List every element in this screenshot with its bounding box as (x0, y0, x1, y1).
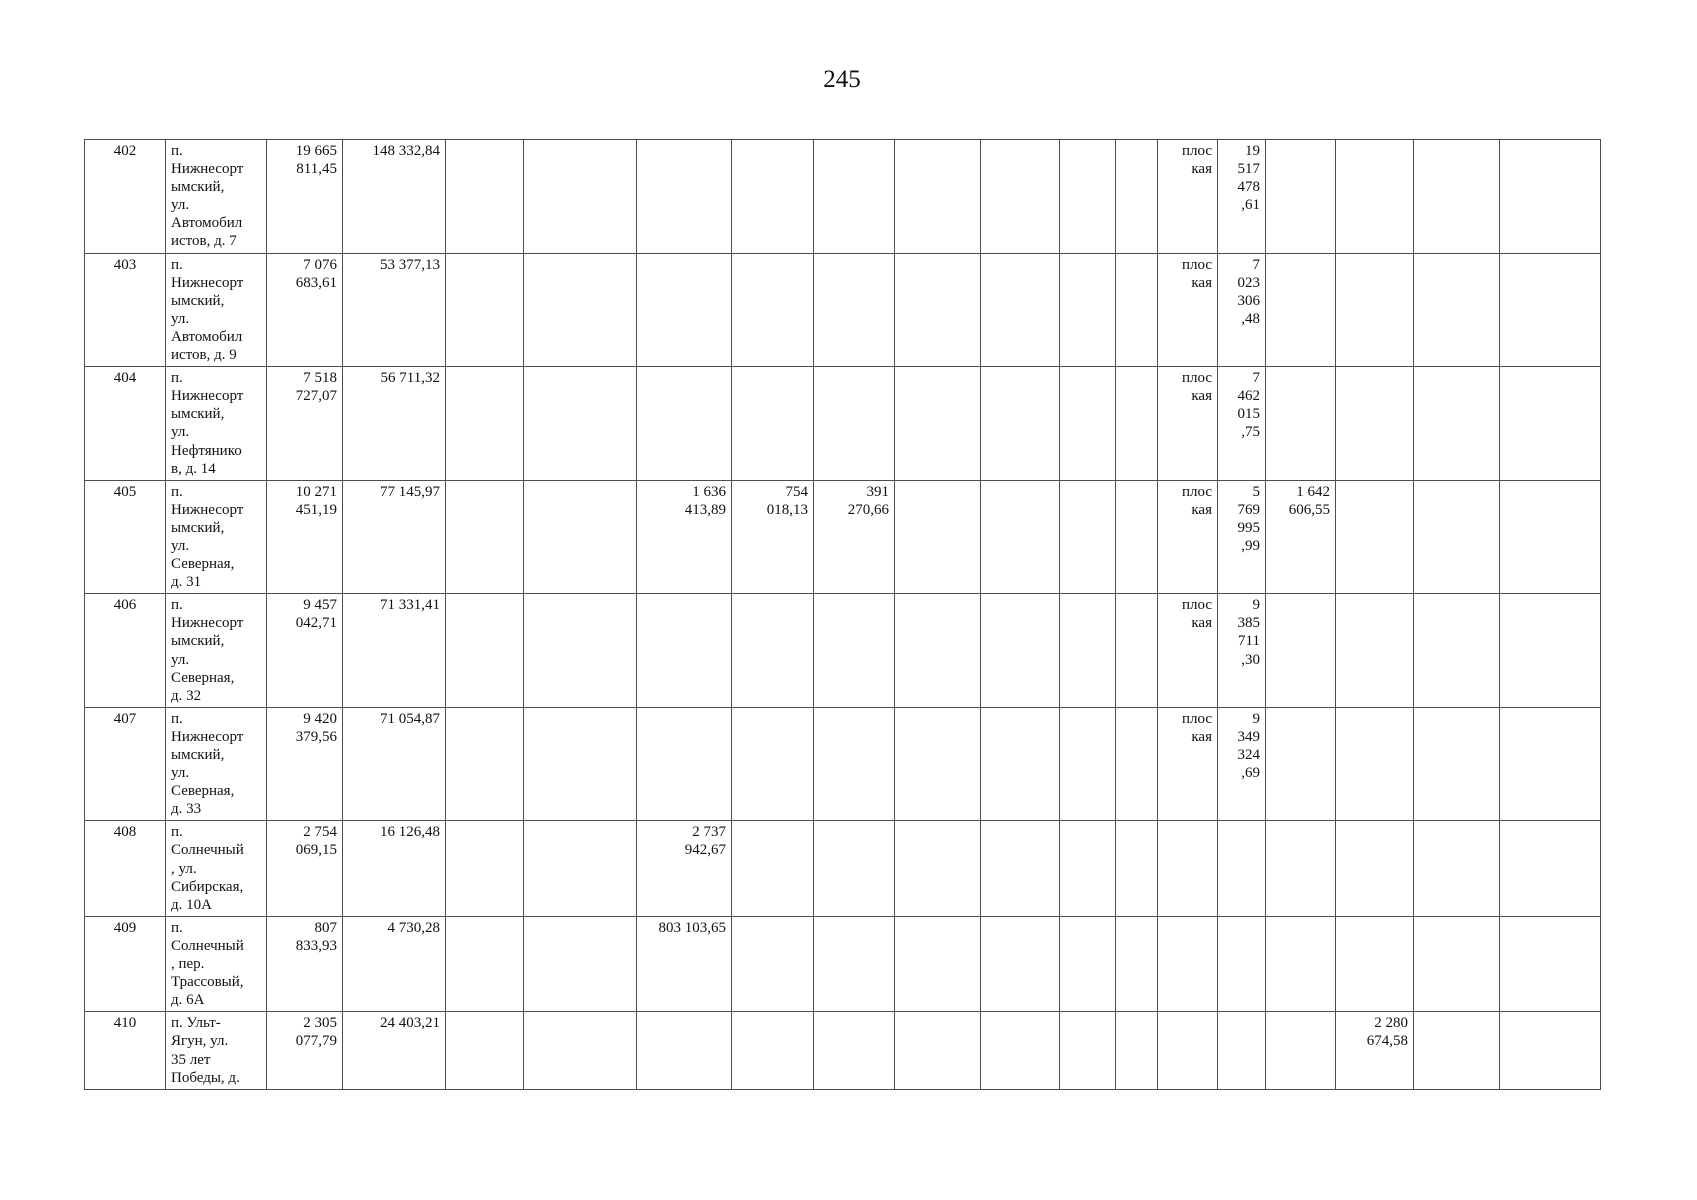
cell-amount-7: 2 280 674,58 (1336, 1012, 1414, 1089)
cell-col-6 (524, 594, 637, 708)
cell-amount-2: 56 711,32 (343, 367, 446, 481)
cell-col-5 (446, 707, 524, 821)
cell-amount-1: 9 457 042,71 (267, 594, 343, 708)
cell-amount-1: 807 833,93 (267, 916, 343, 1011)
cell-col-12 (1060, 140, 1116, 254)
cell-amount-2: 71 054,87 (343, 707, 446, 821)
page-number: 245 (84, 66, 1600, 95)
cell-amount-7 (1336, 916, 1414, 1011)
cell-address: п. Нижнесорт ымский, ул. Нефтянико в, д.… (166, 367, 267, 481)
cell-col-19 (1500, 707, 1601, 821)
cell-col-19 (1500, 367, 1601, 481)
cell-amount-2: 16 126,48 (343, 821, 446, 916)
cell-col-12 (1060, 916, 1116, 1011)
cell-col-18 (1414, 707, 1500, 821)
cell-amount-5 (814, 594, 895, 708)
table-row: 409п. Солнечный , пер. Трассовый, д. 6А8… (85, 916, 1601, 1011)
cell-row-number: 409 (85, 916, 166, 1011)
cell-col-13 (1116, 707, 1158, 821)
cell-col-13 (1116, 480, 1158, 594)
cell-col-12 (1060, 1012, 1116, 1089)
cell-amount-6 (1266, 140, 1336, 254)
cell-col-11 (981, 140, 1060, 254)
cell-amount-2: 24 403,21 (343, 1012, 446, 1089)
cell-row-number: 408 (85, 821, 166, 916)
cell-row-number: 407 (85, 707, 166, 821)
cell-row-number: 410 (85, 1012, 166, 1089)
cell-row-number: 402 (85, 140, 166, 254)
table-body: 402п. Нижнесорт ымский, ул. Автомобил ис… (85, 140, 1601, 1090)
cell-col-12 (1060, 253, 1116, 367)
cell-amount-5 (814, 1012, 895, 1089)
cell-amount-1: 10 271 451,19 (267, 480, 343, 594)
cell-col-6 (524, 821, 637, 916)
cell-amount-5 (814, 707, 895, 821)
cell-col-18 (1414, 821, 1500, 916)
cell-amount-3 (637, 594, 732, 708)
cell-col-10 (895, 253, 981, 367)
cell-amount-7 (1336, 480, 1414, 594)
cell-col-13 (1116, 253, 1158, 367)
cell-col-10 (895, 821, 981, 916)
table-row: 410п. Ульт- Ягун, ул. 35 лет Победы, д.2… (85, 1012, 1601, 1089)
cell-amount-3: 2 737 942,67 (637, 821, 732, 916)
cell-amount-3 (637, 367, 732, 481)
cell-roof-type: плос кая (1158, 707, 1218, 821)
cell-col-19 (1500, 916, 1601, 1011)
cell-col-5 (446, 140, 524, 254)
cell-amount-6 (1266, 594, 1336, 708)
table-row: 402п. Нижнесорт ымский, ул. Автомобил ис… (85, 140, 1601, 254)
cell-amount-6 (1266, 821, 1336, 916)
cell-col-19 (1500, 140, 1601, 254)
cell-col-5 (446, 480, 524, 594)
cell-col-13 (1116, 367, 1158, 481)
cell-amount-3 (637, 253, 732, 367)
cell-col-10 (895, 707, 981, 821)
cell-col-10 (895, 916, 981, 1011)
cell-col-18 (1414, 916, 1500, 1011)
cell-roof-amount (1218, 916, 1266, 1011)
cell-col-12 (1060, 594, 1116, 708)
cell-col-18 (1414, 367, 1500, 481)
cell-col-5 (446, 916, 524, 1011)
cell-roof-amount (1218, 1012, 1266, 1089)
cell-col-5 (446, 594, 524, 708)
cell-amount-4 (732, 140, 814, 254)
table-row: 403п. Нижнесорт ымский, ул. Автомобил ис… (85, 253, 1601, 367)
cell-col-13 (1116, 140, 1158, 254)
cell-col-5 (446, 821, 524, 916)
cell-col-10 (895, 140, 981, 254)
cell-amount-5 (814, 821, 895, 916)
table-row: 407п. Нижнесорт ымский, ул. Северная, д.… (85, 707, 1601, 821)
cell-row-number: 406 (85, 594, 166, 708)
cell-row-number: 404 (85, 367, 166, 481)
cell-col-10 (895, 480, 981, 594)
cell-col-13 (1116, 594, 1158, 708)
cell-roof-type: плос кая (1158, 253, 1218, 367)
cell-amount-4 (732, 707, 814, 821)
cell-amount-2: 148 332,84 (343, 140, 446, 254)
cell-col-6 (524, 140, 637, 254)
cell-address: п. Солнечный , пер. Трассовый, д. 6А (166, 916, 267, 1011)
cell-col-12 (1060, 707, 1116, 821)
cell-col-11 (981, 1012, 1060, 1089)
cell-amount-7 (1336, 140, 1414, 254)
cell-col-6 (524, 480, 637, 594)
cell-amount-4 (732, 821, 814, 916)
cell-amount-1: 9 420 379,56 (267, 707, 343, 821)
cell-col-6 (524, 916, 637, 1011)
cell-col-18 (1414, 253, 1500, 367)
cell-address: п. Нижнесорт ымский, ул. Северная, д. 31 (166, 480, 267, 594)
cell-col-11 (981, 821, 1060, 916)
cell-roof-type (1158, 1012, 1218, 1089)
cell-col-5 (446, 253, 524, 367)
cell-amount-5: 391 270,66 (814, 480, 895, 594)
cell-col-6 (524, 707, 637, 821)
cell-amount-5 (814, 253, 895, 367)
cell-amount-6 (1266, 707, 1336, 821)
cell-col-5 (446, 1012, 524, 1089)
cell-amount-4 (732, 1012, 814, 1089)
cell-col-5 (446, 367, 524, 481)
cell-amount-7 (1336, 707, 1414, 821)
cell-col-10 (895, 367, 981, 481)
table-row: 408п. Солнечный , ул. Сибирская, д. 10А2… (85, 821, 1601, 916)
cell-col-10 (895, 594, 981, 708)
cell-amount-3 (637, 140, 732, 254)
cell-roof-type: плос кая (1158, 367, 1218, 481)
cell-col-6 (524, 367, 637, 481)
cell-amount-2: 77 145,97 (343, 480, 446, 594)
cell-address: п. Нижнесорт ымский, ул. Северная, д. 33 (166, 707, 267, 821)
cell-address: п. Солнечный , ул. Сибирская, д. 10А (166, 821, 267, 916)
cell-amount-1: 19 665 811,45 (267, 140, 343, 254)
cell-amount-3: 803 103,65 (637, 916, 732, 1011)
cell-col-18 (1414, 480, 1500, 594)
cell-col-19 (1500, 821, 1601, 916)
cell-col-13 (1116, 1012, 1158, 1089)
cell-amount-4: 754 018,13 (732, 480, 814, 594)
cell-amount-1: 2 305 077,79 (267, 1012, 343, 1089)
cell-amount-3 (637, 707, 732, 821)
cell-col-11 (981, 253, 1060, 367)
table-row: 404п. Нижнесорт ымский, ул. Нефтянико в,… (85, 367, 1601, 481)
cell-amount-1: 2 754 069,15 (267, 821, 343, 916)
cell-amount-5 (814, 916, 895, 1011)
cell-col-11 (981, 916, 1060, 1011)
cell-address: п. Ульт- Ягун, ул. 35 лет Победы, д. (166, 1012, 267, 1089)
cell-amount-5 (814, 140, 895, 254)
cell-roof-amount: 7 462 015 ,75 (1218, 367, 1266, 481)
cell-amount-7 (1336, 594, 1414, 708)
cell-col-11 (981, 707, 1060, 821)
cell-roof-amount: 9 349 324 ,69 (1218, 707, 1266, 821)
cell-amount-6 (1266, 367, 1336, 481)
table-row: 406п. Нижнесорт ымский, ул. Северная, д.… (85, 594, 1601, 708)
cell-amount-4 (732, 367, 814, 481)
cell-col-19 (1500, 594, 1601, 708)
cell-col-13 (1116, 821, 1158, 916)
cell-amount-1: 7 518 727,07 (267, 367, 343, 481)
cell-amount-1: 7 076 683,61 (267, 253, 343, 367)
cell-amount-2: 71 331,41 (343, 594, 446, 708)
cell-amount-7 (1336, 821, 1414, 916)
cell-col-6 (524, 253, 637, 367)
cell-amount-4 (732, 594, 814, 708)
cell-address: п. Нижнесорт ымский, ул. Северная, д. 32 (166, 594, 267, 708)
cell-col-19 (1500, 253, 1601, 367)
cell-roof-type: плос кая (1158, 594, 1218, 708)
cell-roof-amount: 5 769 995 ,99 (1218, 480, 1266, 594)
cell-amount-3: 1 636 413,89 (637, 480, 732, 594)
cell-amount-7 (1336, 367, 1414, 481)
cell-row-number: 405 (85, 480, 166, 594)
cell-amount-4 (732, 253, 814, 367)
cell-col-18 (1414, 140, 1500, 254)
cell-amount-5 (814, 367, 895, 481)
cell-col-19 (1500, 480, 1601, 594)
cell-roof-type: плос кая (1158, 140, 1218, 254)
cell-roof-type (1158, 821, 1218, 916)
cell-amount-2: 53 377,13 (343, 253, 446, 367)
cell-amount-6 (1266, 916, 1336, 1011)
cell-col-12 (1060, 821, 1116, 916)
cell-roof-amount: 9 385 711 ,30 (1218, 594, 1266, 708)
cell-col-19 (1500, 1012, 1601, 1089)
cell-amount-6: 1 642 606,55 (1266, 480, 1336, 594)
cell-roof-amount: 7 023 306 ,48 (1218, 253, 1266, 367)
cell-amount-3 (637, 1012, 732, 1089)
cell-amount-6 (1266, 1012, 1336, 1089)
cell-col-6 (524, 1012, 637, 1089)
cell-amount-7 (1336, 253, 1414, 367)
cell-col-10 (895, 1012, 981, 1089)
cell-roof-amount: 19 517 478 ,61 (1218, 140, 1266, 254)
cell-col-12 (1060, 367, 1116, 481)
cell-col-11 (981, 594, 1060, 708)
cell-roof-amount (1218, 821, 1266, 916)
address-amounts-table: 402п. Нижнесорт ымский, ул. Автомобил ис… (84, 139, 1601, 1090)
cell-address: п. Нижнесорт ымский, ул. Автомобил истов… (166, 140, 267, 254)
cell-roof-type: плос кая (1158, 480, 1218, 594)
cell-col-13 (1116, 916, 1158, 1011)
cell-col-11 (981, 480, 1060, 594)
cell-row-number: 403 (85, 253, 166, 367)
cell-amount-6 (1266, 253, 1336, 367)
cell-col-12 (1060, 480, 1116, 594)
cell-col-11 (981, 367, 1060, 481)
cell-col-18 (1414, 594, 1500, 708)
cell-amount-4 (732, 916, 814, 1011)
cell-amount-2: 4 730,28 (343, 916, 446, 1011)
cell-roof-type (1158, 916, 1218, 1011)
cell-address: п. Нижнесорт ымский, ул. Автомобил истов… (166, 253, 267, 367)
cell-col-18 (1414, 1012, 1500, 1089)
table-row: 405п. Нижнесорт ымский, ул. Северная, д.… (85, 480, 1601, 594)
